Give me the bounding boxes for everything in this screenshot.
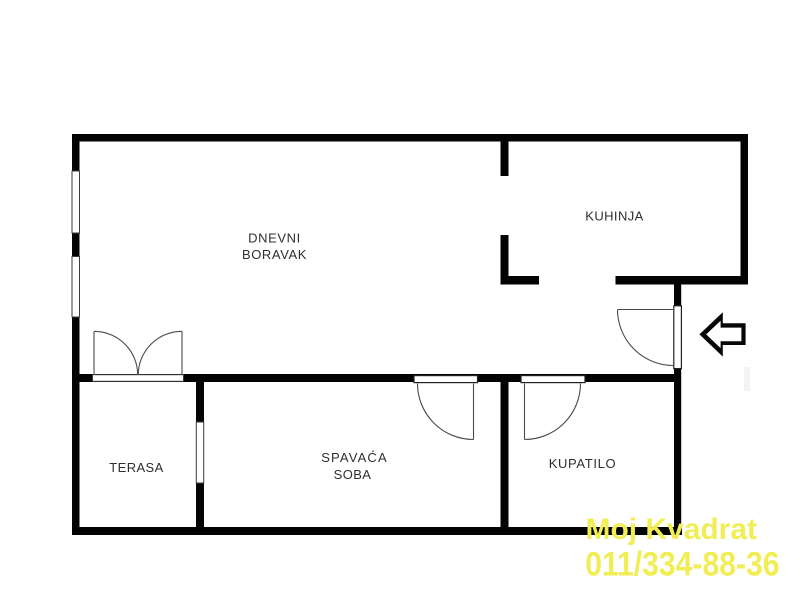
svg-text:TERASA: TERASA — [109, 460, 163, 475]
svg-text:SOBA: SOBA — [334, 467, 372, 482]
svg-text:DNEVNI: DNEVNI — [248, 231, 301, 246]
svg-text:011/334-88-36: 011/334-88-36 — [585, 545, 779, 583]
svg-text:BORAVAK: BORAVAK — [242, 247, 307, 262]
svg-text:SPAVAĆA: SPAVAĆA — [321, 450, 388, 465]
svg-text:KUHINJA: KUHINJA — [585, 209, 643, 224]
svg-text:Moj Kvadrat: Moj Kvadrat — [586, 513, 758, 546]
svg-text:KUPATILO: KUPATILO — [549, 456, 617, 471]
